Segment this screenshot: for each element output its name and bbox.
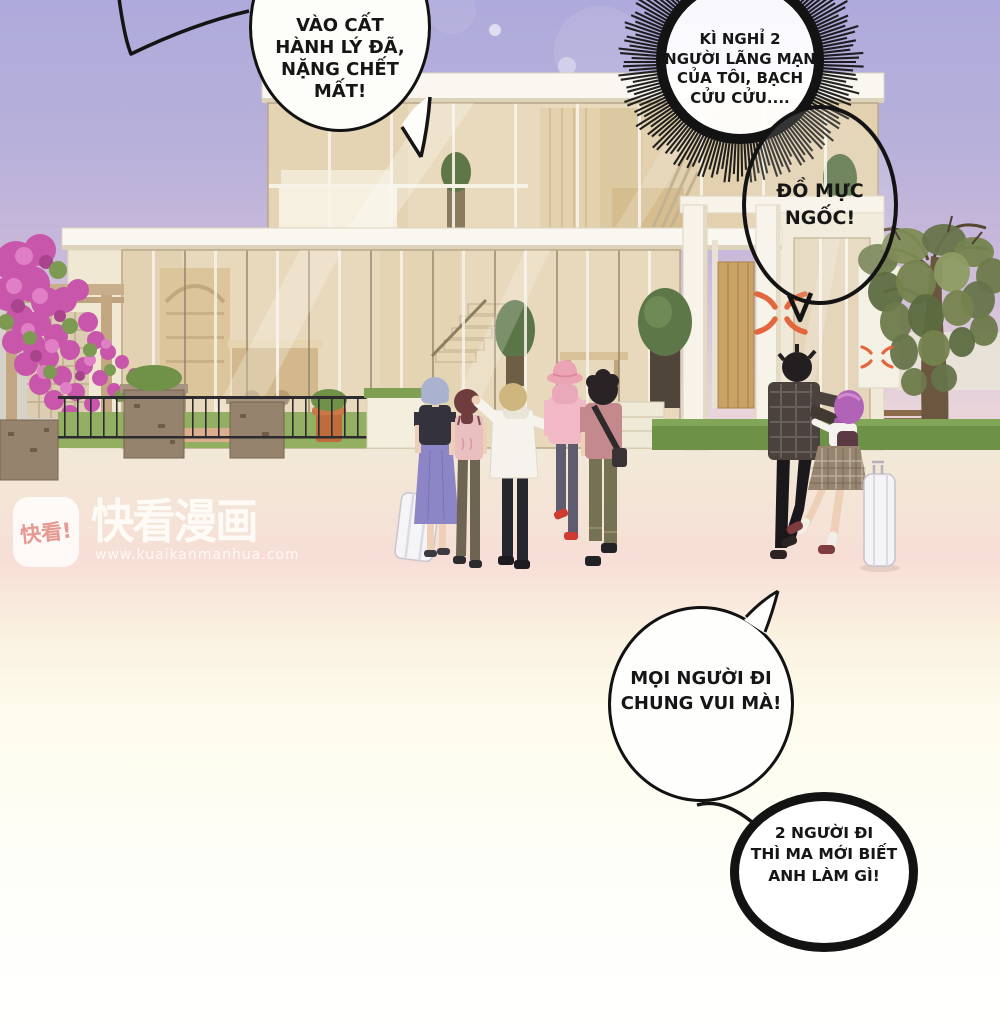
comic-panel: 快看! 快看漫画 www.kuaikanmanhua.com VÀO CẤT H… (0, 0, 1000, 1034)
burst-bubble-retort: 2 NGƯỜI ĐI THÌ MA MỚI BIẾT ANH LÀM GÌ! (730, 792, 918, 952)
watermark: 快看! 快看漫画 www.kuaikanmanhua.com (13, 497, 300, 567)
watermark-brand: 快看漫画 (91, 497, 283, 549)
kuaikan-logo: 快看! (13, 497, 79, 567)
speech-bubble-insult: ĐỒ MỰC NGỐC! (742, 105, 898, 305)
suitcase-right (860, 462, 900, 572)
kuaikan-logo-text: 快看! (19, 514, 73, 549)
speech-bubble-invite: MỌI NGƯỜI ĐI CHUNG VUI MÀ! (608, 606, 794, 802)
